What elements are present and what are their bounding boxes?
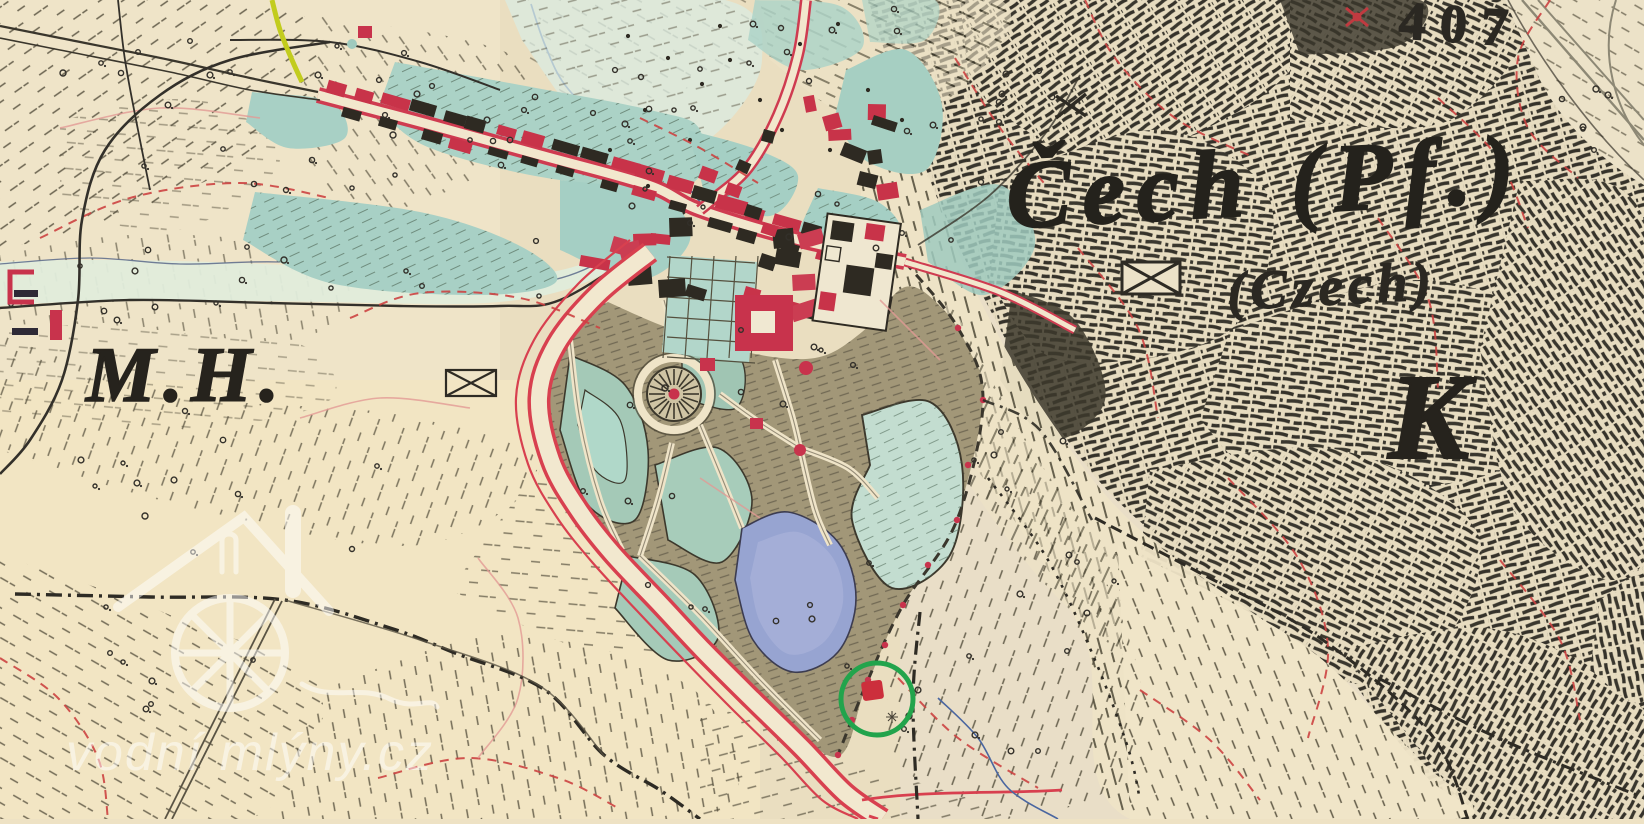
svg-text:vodní mlýny.cz: vodní mlýny.cz: [66, 724, 434, 782]
svg-text:K: K: [1387, 350, 1477, 485]
svg-text:407: 407: [1397, 0, 1524, 59]
svg-text:M.H.: M.H.: [84, 331, 287, 418]
svg-text:(Czech): (Czech): [1225, 250, 1437, 322]
